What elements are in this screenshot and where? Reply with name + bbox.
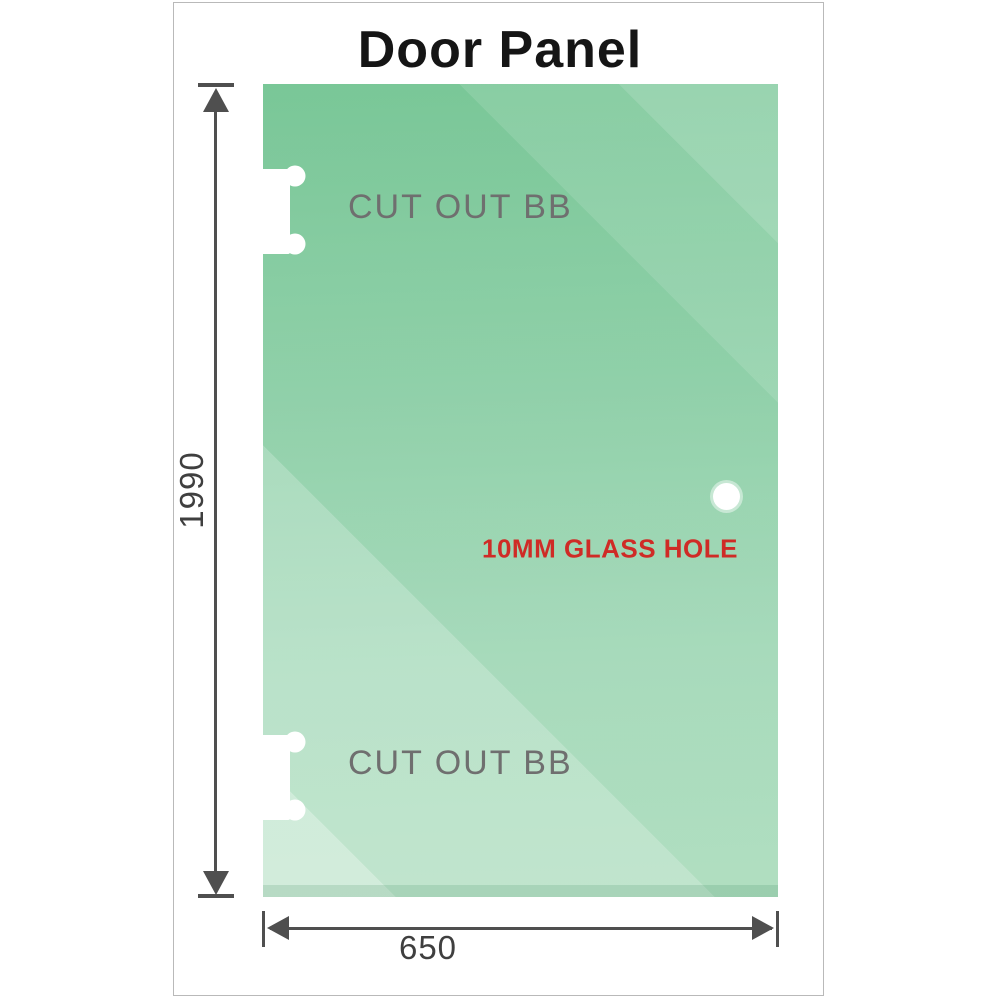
width-dim-arrow-right-icon [752,916,774,940]
page-title: Door Panel [358,20,643,80]
hinge-cutout-shape-icon [256,164,308,258]
glass-hole-icon [713,483,740,510]
width-dim-tick-right [776,911,779,947]
height-dim-line [214,96,217,890]
cutout-label-bottom: CUT OUT BB [348,745,573,781]
glass-hole-label: 10MM GLASS HOLE [482,534,738,565]
height-dimension-value: 1990 [173,451,211,528]
cutout-label-top: CUT OUT BB [348,189,573,225]
hinge-cutout-bottom [256,730,308,824]
hinge-cutout-shape-icon [256,730,308,824]
height-dim-arrow-down-icon [203,871,229,895]
door-panel-diagram: Door Panel CUT OUT BB CUT OUT BB 10MM GL… [0,0,1000,1000]
height-dim-cap-top [198,83,234,87]
height-dim-cap-bottom [198,894,234,898]
hinge-cutout-top [256,164,308,258]
width-dim-tick-left [262,911,265,947]
width-dim-line [270,927,772,930]
width-dimension-value: 650 [399,929,457,967]
glass-bottom-shade [263,885,778,897]
